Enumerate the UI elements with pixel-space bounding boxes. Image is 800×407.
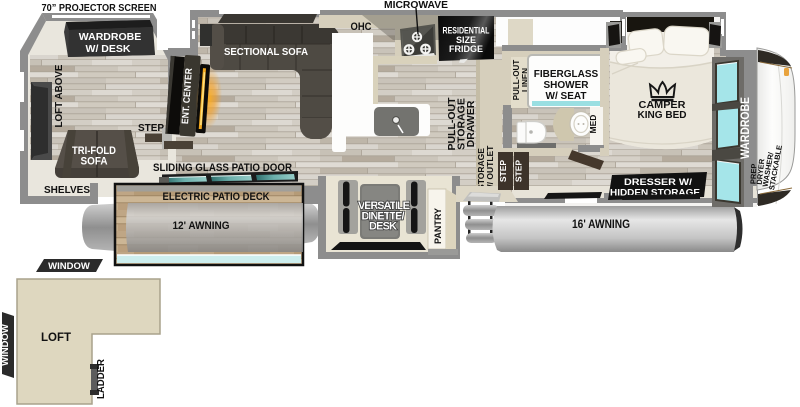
svg-text:70” PROJECTOR SCREEN: 70” PROJECTOR SCREEN bbox=[42, 3, 157, 14]
svg-text:STEP: STEP bbox=[498, 160, 508, 183]
svg-text:SHELVES: SHELVES bbox=[44, 184, 90, 196]
svg-text:PULL-OUT: PULL-OUT bbox=[512, 60, 521, 101]
svg-text:WINDOW: WINDOW bbox=[48, 261, 90, 272]
svg-text:LOFT ABOVE: LOFT ABOVE bbox=[54, 64, 65, 127]
svg-text:SECTIONAL SOFA: SECTIONAL SOFA bbox=[224, 46, 308, 58]
svg-text:WINDOW: WINDOW bbox=[0, 324, 11, 366]
svg-text:MED: MED bbox=[588, 115, 598, 134]
svg-text:FIBERGLASS: FIBERGLASS bbox=[534, 69, 599, 80]
svg-text:DRESSER W/: DRESSER W/ bbox=[624, 177, 692, 188]
svg-text:FRIDGE: FRIDGE bbox=[449, 44, 483, 54]
svg-text:12' AWNING: 12' AWNING bbox=[173, 220, 230, 232]
svg-text:SOFA: SOFA bbox=[81, 156, 108, 168]
svg-text:W/ OUTLET: W/ OUTLET bbox=[485, 145, 495, 193]
svg-text:STEP: STEP bbox=[138, 123, 164, 134]
svg-text:LADDER: LADDER bbox=[96, 358, 107, 399]
svg-text:OHC: OHC bbox=[351, 21, 372, 33]
svg-text:DRAWER: DRAWER bbox=[465, 100, 477, 147]
svg-text:16' AWNING: 16' AWNING bbox=[572, 217, 630, 231]
svg-text:W/ DESK: W/ DESK bbox=[86, 43, 131, 55]
svg-text:ELECTRIC PATIO DECK: ELECTRIC PATIO DECK bbox=[163, 191, 270, 203]
svg-text:SHOWER: SHOWER bbox=[544, 80, 590, 91]
svg-text:MICROWAVE: MICROWAVE bbox=[384, 0, 448, 11]
svg-text:RESIDENTIAL: RESIDENTIAL bbox=[443, 26, 490, 36]
svg-text:KING BED: KING BED bbox=[638, 110, 687, 121]
svg-text:PREP: PREP bbox=[748, 163, 758, 184]
svg-text:DESK: DESK bbox=[369, 221, 397, 233]
svg-text:W/ SEAT: W/ SEAT bbox=[546, 91, 587, 102]
svg-text:STEP: STEP bbox=[514, 160, 524, 183]
svg-text:PANTRY: PANTRY bbox=[433, 208, 443, 244]
svg-text:WARDROBE: WARDROBE bbox=[740, 97, 752, 159]
svg-text:WARDROBE: WARDROBE bbox=[79, 31, 141, 43]
svg-text:LOFT: LOFT bbox=[41, 332, 71, 344]
